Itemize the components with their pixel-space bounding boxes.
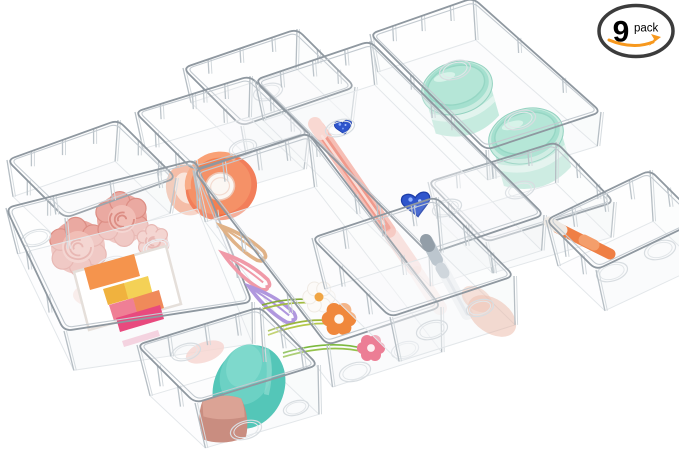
svg-text:pack: pack bbox=[634, 23, 659, 35]
